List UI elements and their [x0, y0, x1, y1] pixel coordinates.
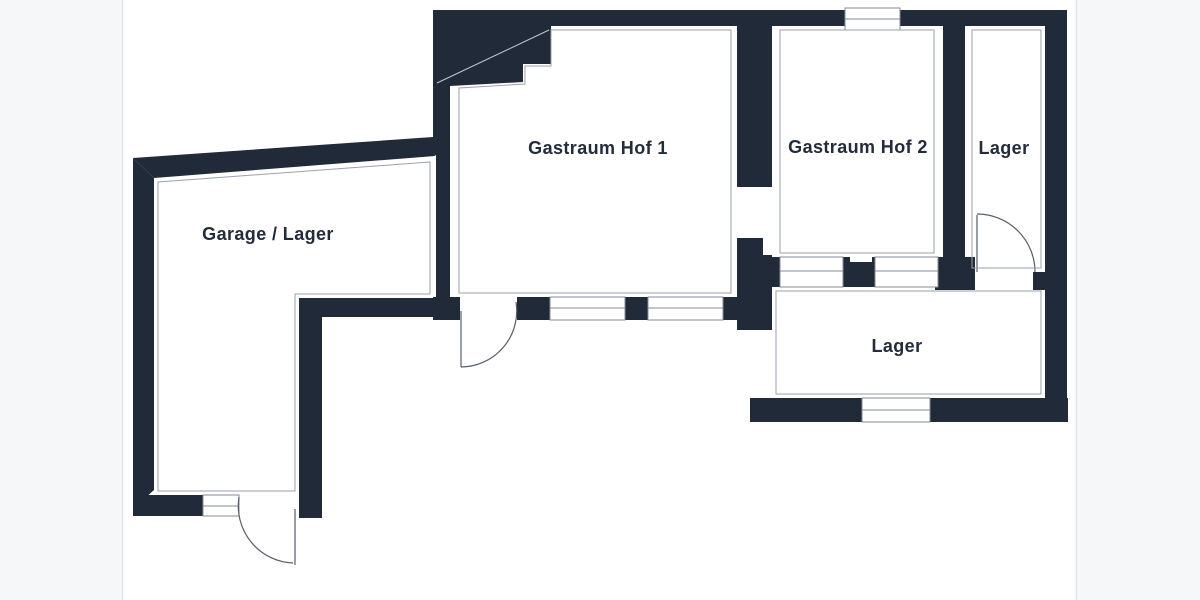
floorplan-drawing: Garage / Lager Gastraum Hof 1 Gastraum H… [0, 0, 1200, 600]
wall-garage-right [299, 317, 322, 518]
wall-hof2-bottom-b [935, 257, 975, 290]
window-symbol-hof2-right [875, 257, 938, 287]
wall-hof2-lager [943, 26, 965, 257]
room-label-gastraum-hof-2: Gastraum Hof 2 [788, 137, 928, 157]
window-symbol-hof1-left [550, 297, 625, 320]
jamb-notch-hof2-pier [850, 257, 872, 262]
wall-garage-left [133, 158, 154, 509]
window-symbol-hof2-left [780, 257, 843, 287]
jamb-notch-passage [763, 238, 772, 255]
wall-right [1045, 10, 1067, 422]
wall-hof1-bottom-b [517, 297, 550, 320]
floorplan-canvas: Garage / Lager Gastraum Hof 1 Gastraum H… [0, 0, 1200, 600]
wall-top [433, 10, 1067, 26]
room-label-lager-bottom: Lager [871, 336, 922, 356]
room-label-garage: Garage / Lager [202, 224, 334, 244]
wall-hof1-bottom-c [625, 297, 648, 320]
wall-hof2-bottom-a [772, 257, 780, 287]
window-symbol-hof1-right [648, 297, 723, 320]
wall-garage-bottom [133, 495, 203, 516]
window-symbol-garage [203, 495, 239, 516]
room-label-gastraum-hof-1: Gastraum Hof 1 [528, 138, 668, 158]
window-symbol-lager-bottom [862, 398, 930, 422]
wall-hof1-hof2-upper [737, 26, 772, 187]
wall-hof1-bottom-a [433, 297, 460, 320]
room-label-lager-top: Lager [978, 138, 1029, 158]
window-symbol-hof2-top [845, 8, 900, 30]
wall-lagertop-bottom-stub [1033, 272, 1045, 290]
